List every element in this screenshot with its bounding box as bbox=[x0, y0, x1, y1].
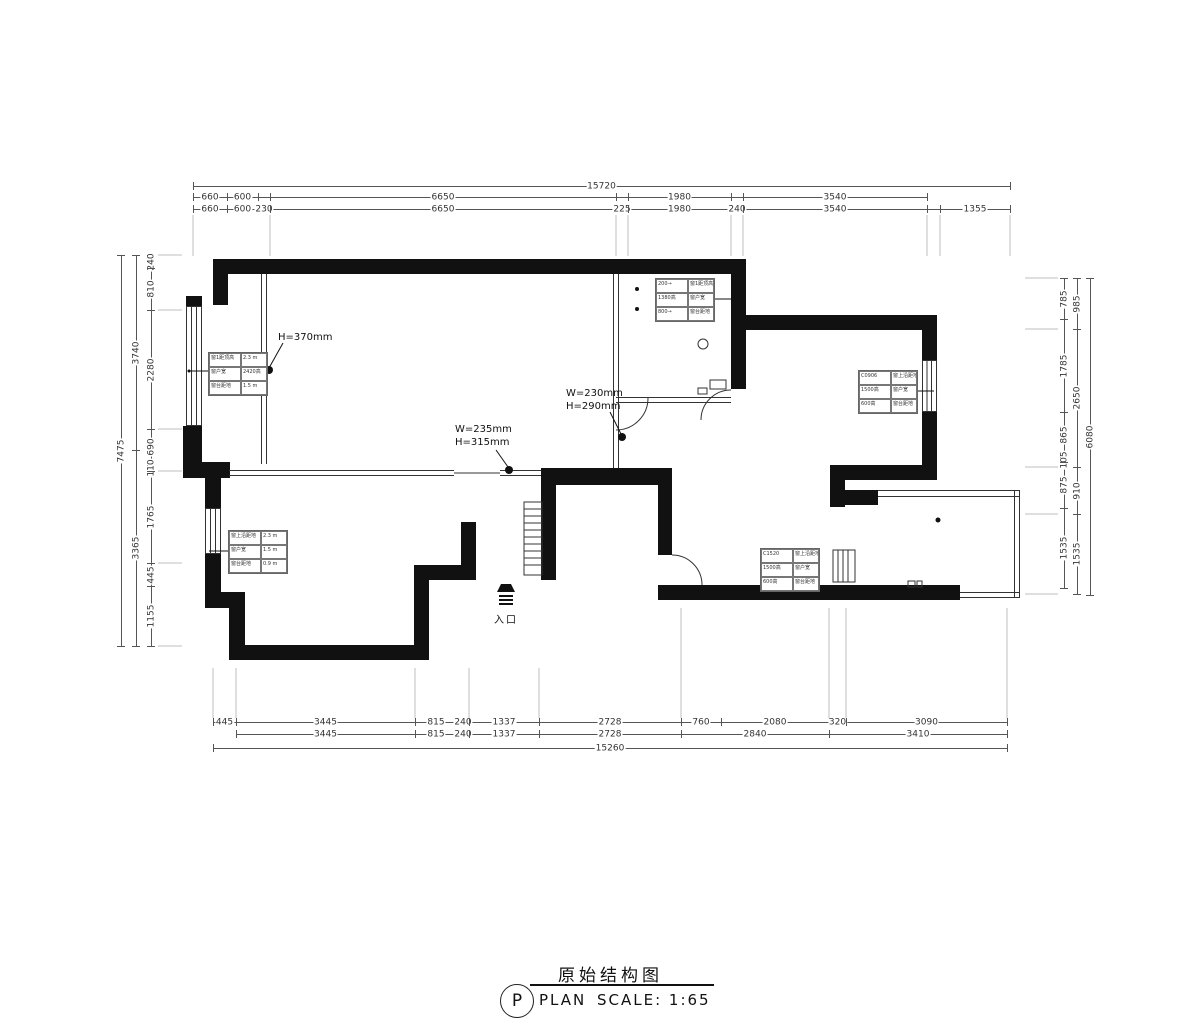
annotation-cell: 600高 bbox=[761, 577, 793, 591]
annotation-cell: 1.5 m bbox=[241, 381, 267, 395]
dimension-tick bbox=[147, 268, 155, 269]
dimension-tick bbox=[616, 193, 617, 201]
annotation-cell: 1380高 bbox=[656, 293, 688, 307]
dimension-label: 1535 bbox=[1073, 542, 1082, 567]
dimension-label: 2080 bbox=[763, 718, 788, 727]
dimension-label: 110 bbox=[147, 458, 156, 477]
dimension-tick bbox=[193, 193, 194, 201]
annotation-cell: 窗户宽 bbox=[209, 367, 241, 381]
dimension-tick bbox=[743, 193, 744, 201]
dimension-tick bbox=[731, 193, 732, 201]
annotation-cell: 窗户宽 bbox=[688, 293, 714, 307]
annotation-cell: 窗户宽 bbox=[891, 385, 917, 399]
dimension-label: 3540 bbox=[823, 193, 848, 202]
dimension-tick bbox=[681, 730, 682, 738]
dimension-tick bbox=[227, 193, 228, 201]
dimension-label: 6650 bbox=[431, 193, 456, 202]
dimension-tick bbox=[117, 646, 125, 647]
dimension-label: 3090 bbox=[914, 718, 939, 727]
dimension-tick bbox=[1007, 718, 1008, 726]
annotation-cell: 窗台距地 bbox=[209, 381, 241, 395]
plan-linework bbox=[0, 0, 1200, 1026]
dimension-label: 445 bbox=[215, 718, 234, 727]
dimension-tick bbox=[469, 718, 470, 726]
dimension-label: 15260 bbox=[595, 744, 626, 753]
dimension-label: 3410 bbox=[906, 730, 931, 739]
dimension-label: 1337 bbox=[492, 718, 517, 727]
annotation-cell: 2.3 m bbox=[241, 353, 267, 367]
callout-w230: W=230mm H=290mm bbox=[566, 388, 623, 413]
dimension-label: 815 bbox=[426, 718, 445, 727]
dimension-label: 660 bbox=[200, 193, 219, 202]
dimension-label: 1535 bbox=[1060, 536, 1069, 561]
dimension-tick bbox=[1007, 730, 1008, 738]
dimension-tick bbox=[270, 205, 271, 213]
dimension-tick bbox=[147, 563, 155, 564]
dimension-tick bbox=[270, 193, 271, 201]
dimension-tick bbox=[147, 646, 155, 647]
callout-w235-line2: H=315mm bbox=[455, 437, 512, 450]
dimension-label: 600 bbox=[233, 205, 252, 214]
dimension-tick bbox=[1010, 182, 1011, 190]
plan-marker-circle: P bbox=[500, 984, 534, 1018]
dimension-label: 2280 bbox=[147, 357, 156, 382]
dimension-label: 3740 bbox=[132, 340, 141, 365]
dimension-label: 1980 bbox=[667, 205, 692, 214]
window-annotation-table: C1520窗上沿距地1500高窗户宽600高窗台距地 bbox=[760, 548, 820, 592]
dimension-label: 810 bbox=[147, 279, 156, 298]
dimension-tick bbox=[227, 205, 228, 213]
dimension-tick bbox=[1073, 467, 1081, 468]
title-underline bbox=[530, 984, 714, 986]
dimension-tick bbox=[1060, 412, 1068, 413]
annotation-cell: C0906 bbox=[859, 371, 891, 385]
window-annotation-table: 200→窗1距顶高1380高窗户宽800→窗台距地 bbox=[655, 278, 715, 322]
dimension-label: 15720 bbox=[586, 182, 617, 191]
dimension-tick bbox=[147, 310, 155, 311]
annotation-cell: 窗上沿距地 bbox=[891, 371, 917, 385]
dimension-tick bbox=[469, 730, 470, 738]
dimension-label: 875 bbox=[1060, 475, 1069, 494]
annotation-cell: 窗上沿距地 bbox=[229, 531, 261, 545]
dimension-label: 1785 bbox=[1060, 353, 1069, 378]
dimension-tick bbox=[1073, 594, 1081, 595]
dimension-label: 2728 bbox=[598, 718, 623, 727]
annotation-cell: 窗1距顶高 bbox=[688, 279, 714, 293]
floor-plan-canvas: H=370mm W=230mm H=290mm W=235mm H=315mm … bbox=[0, 0, 1200, 1026]
drawing-title: 原始结构图 bbox=[558, 961, 663, 986]
dimension-tick bbox=[213, 744, 214, 752]
annotation-cell: 1.5 m bbox=[261, 545, 287, 559]
dimension-label: 690 bbox=[147, 437, 156, 456]
window-annotation-table: 窗上沿距地2.3 m窗户宽1.5 m窗台距地0.9 m bbox=[228, 530, 288, 574]
dimension-tick bbox=[415, 718, 416, 726]
dimension-label: 320 bbox=[828, 718, 847, 727]
dimension-tick bbox=[117, 255, 125, 256]
dimension-label: 785 bbox=[1060, 289, 1069, 308]
annotation-cell: 窗台距地 bbox=[793, 577, 819, 591]
window-annotation-table: C0906窗上沿距地1500高窗户宽600高窗台距地 bbox=[858, 370, 918, 414]
dimension-tick bbox=[927, 205, 928, 213]
annotation-cell: 1500高 bbox=[761, 563, 793, 577]
dimension-tick bbox=[628, 205, 629, 213]
annotation-cell: 窗户宽 bbox=[793, 563, 819, 577]
annotation-cell: 2.3 m bbox=[261, 531, 287, 545]
dimension-tick bbox=[415, 730, 416, 738]
dimension-label: 105 bbox=[1060, 450, 1069, 469]
dimension-tick bbox=[1060, 588, 1068, 589]
dimension-tick bbox=[193, 205, 194, 213]
dimension-label: 600 bbox=[233, 193, 252, 202]
dimension-label: 815 bbox=[426, 730, 445, 739]
dimension-label: 1155 bbox=[147, 604, 156, 629]
annotation-cell: 1500高 bbox=[859, 385, 891, 399]
dimension-tick bbox=[1060, 508, 1068, 509]
annotation-cell: 600高 bbox=[859, 399, 891, 413]
dimension-tick bbox=[846, 718, 847, 726]
callout-w235-line1: W=235mm bbox=[455, 424, 512, 437]
annotation-cell: 窗上沿距地 bbox=[793, 549, 819, 563]
dimension-tick bbox=[539, 718, 540, 726]
dimension-label: 660 bbox=[200, 205, 219, 214]
dimension-tick bbox=[539, 730, 540, 738]
annotation-cell: 窗台距地 bbox=[688, 307, 714, 321]
dimension-tick bbox=[721, 718, 722, 726]
callout-w230-line2: H=290mm bbox=[566, 401, 623, 414]
callout-h370: H=370mm bbox=[278, 332, 332, 345]
annotation-cell: 200→ bbox=[656, 279, 688, 293]
annotation-cell: 窗台距地 bbox=[891, 399, 917, 413]
dimension-label: 6080 bbox=[1086, 424, 1095, 449]
callout-w230-line1: W=230mm bbox=[566, 388, 623, 401]
dimension-label: 3445 bbox=[313, 730, 338, 739]
dimension-tick bbox=[829, 730, 830, 738]
callout-h370-text: H=370mm bbox=[278, 332, 332, 343]
dimension-tick bbox=[1086, 595, 1094, 596]
plan-word: PLAN bbox=[539, 991, 586, 1009]
dimension-tick bbox=[1086, 278, 1094, 279]
dimension-tick bbox=[132, 450, 140, 451]
dimension-tick bbox=[213, 718, 214, 726]
annotation-cell: 窗户宽 bbox=[229, 545, 261, 559]
dimension-tick bbox=[1060, 319, 1068, 320]
dimension-tick bbox=[258, 193, 259, 201]
dimension-tick bbox=[927, 193, 928, 201]
dimension-label: 3365 bbox=[132, 536, 141, 561]
dimension-label: 1980 bbox=[667, 193, 692, 202]
dimension-tick bbox=[236, 718, 237, 726]
dimension-tick bbox=[1060, 462, 1068, 463]
dimension-tick bbox=[147, 471, 155, 472]
dimension-tick bbox=[147, 586, 155, 587]
dimension-tick bbox=[1060, 278, 1068, 279]
dimension-label: 865 bbox=[1060, 425, 1069, 444]
dimension-tick bbox=[681, 718, 682, 726]
dimension-label: 445 bbox=[147, 565, 156, 584]
dimension-tick bbox=[147, 429, 155, 430]
annotation-cell: 800→ bbox=[656, 307, 688, 321]
scale-text: SCALE: 1:65 bbox=[597, 991, 711, 1009]
dimension-tick bbox=[1073, 278, 1081, 279]
annotation-cell: 窗1距顶高 bbox=[209, 353, 241, 367]
dimension-tick bbox=[1007, 744, 1008, 752]
dimension-line bbox=[193, 197, 927, 198]
annotation-cell: 窗台距地 bbox=[229, 559, 261, 573]
dimension-tick bbox=[193, 182, 194, 190]
dimension-label: 910 bbox=[1073, 481, 1082, 500]
dimension-label: 1337 bbox=[492, 730, 517, 739]
dimension-label: 2840 bbox=[743, 730, 768, 739]
entrance-label: 入口 bbox=[494, 611, 518, 626]
window-annotation-table: 窗1距顶高2.3 m窗户宽2420高窗台距地1.5 m bbox=[208, 352, 268, 396]
dimension-label: 3540 bbox=[823, 205, 848, 214]
dimension-label: 2728 bbox=[598, 730, 623, 739]
annotation-cell: 0.9 m bbox=[261, 559, 287, 573]
dimension-label: 985 bbox=[1073, 294, 1082, 313]
annotation-cell: C1520 bbox=[761, 549, 793, 563]
plan-marker-letter: P bbox=[512, 991, 522, 1011]
dimension-tick bbox=[132, 646, 140, 647]
dimension-tick bbox=[940, 205, 941, 213]
dimension-tick bbox=[628, 193, 629, 201]
dimension-tick bbox=[236, 730, 237, 738]
dimension-tick bbox=[1010, 205, 1011, 213]
dimension-label: 1355 bbox=[963, 205, 988, 214]
annotation-cell: 2420高 bbox=[241, 367, 267, 381]
dimension-label: 6650 bbox=[431, 205, 456, 214]
dimension-tick bbox=[132, 255, 140, 256]
dimension-tick bbox=[743, 205, 744, 213]
dimension-tick bbox=[1073, 329, 1081, 330]
callout-w235: W=235mm H=315mm bbox=[455, 424, 512, 449]
dimension-tick bbox=[1073, 514, 1081, 515]
dimension-label: 3445 bbox=[313, 718, 338, 727]
dimension-label: 760 bbox=[691, 718, 710, 727]
dimension-line bbox=[193, 209, 1010, 210]
dimension-label: 1765 bbox=[147, 505, 156, 530]
dimension-label: 2650 bbox=[1073, 386, 1082, 411]
dimension-label: 7475 bbox=[117, 438, 126, 463]
